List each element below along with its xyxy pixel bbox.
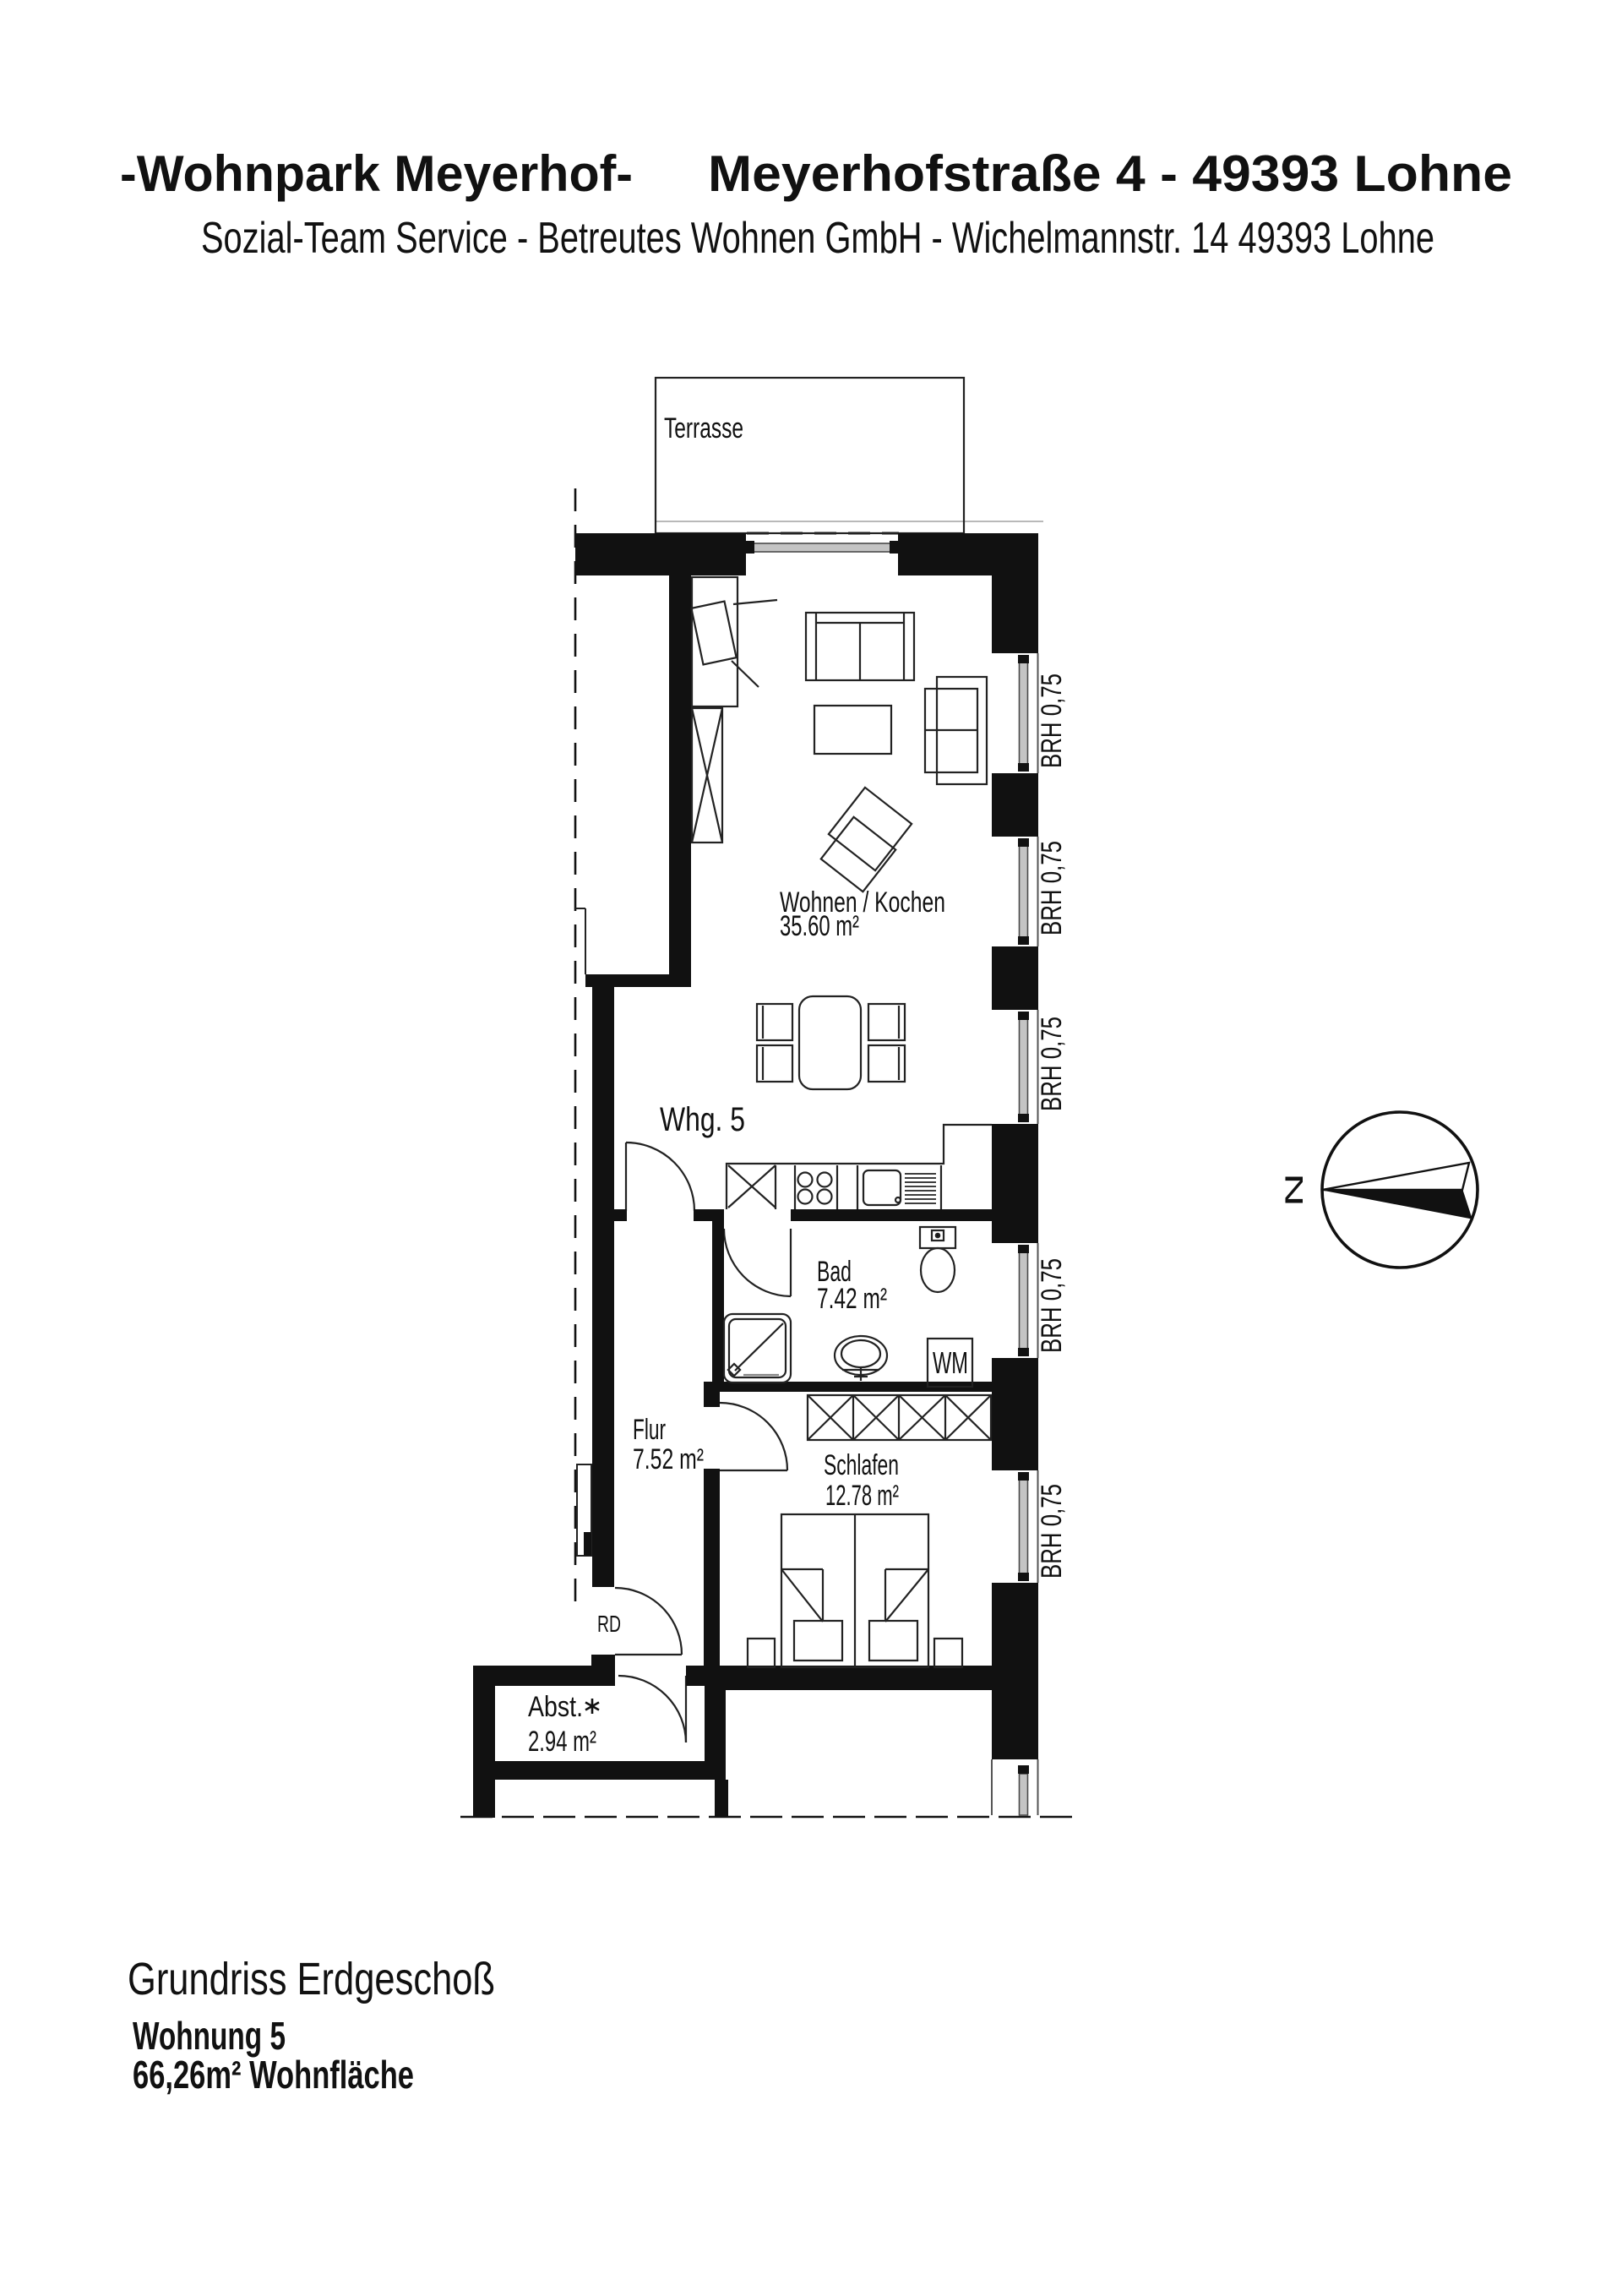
svg-text:BRH 0,75: BRH 0,75 — [1036, 674, 1068, 768]
svg-text:7.52 m²: 7.52 m² — [633, 1443, 704, 1475]
svg-text:Schlafen: Schlafen — [824, 1449, 899, 1481]
svg-text:Abst.: Abst. — [528, 1691, 583, 1723]
svg-text:2.94 m²: 2.94 m² — [528, 1726, 596, 1758]
svg-text:WM: WM — [933, 1345, 968, 1380]
svg-text:Sozial-Team Service - Betreute: Sozial-Team Service - Betreutes Wohnen G… — [201, 214, 1434, 263]
svg-text:N: N — [1281, 1173, 1309, 1207]
svg-text:BRH 0,75: BRH 0,75 — [1036, 1484, 1068, 1579]
svg-text:Flur: Flur — [633, 1414, 666, 1446]
svg-text:BRH 0,75: BRH 0,75 — [1036, 1258, 1068, 1353]
svg-text:7.42 m²: 7.42 m² — [817, 1283, 887, 1315]
svg-text:BRH 0,75: BRH 0,75 — [1036, 841, 1068, 935]
svg-text:12.78 m²: 12.78 m² — [825, 1480, 899, 1512]
svg-text:35.60 m²: 35.60 m² — [780, 910, 859, 942]
svg-text:BRH 0,75: BRH 0,75 — [1036, 1017, 1068, 1111]
svg-text:Wohnung 5: Wohnung 5 — [133, 2014, 286, 2058]
svg-text:66,26m² Wohnfläche: 66,26m² Wohnfläche — [133, 2053, 414, 2097]
svg-text:-Wohnpark Meyerhof-: -Wohnpark Meyerhof- — [120, 145, 633, 202]
svg-text:Meyerhofstraße 4 - 49393 Lohne: Meyerhofstraße 4 - 49393 Lohne — [708, 145, 1512, 202]
svg-text:Whg. 5: Whg. 5 — [660, 1101, 745, 1138]
svg-text:Grundriss Erdgeschoß: Grundriss Erdgeschoß — [128, 1954, 495, 2004]
svg-text:RD: RD — [597, 1611, 621, 1637]
svg-text:Terrasse: Terrasse — [664, 412, 743, 444]
